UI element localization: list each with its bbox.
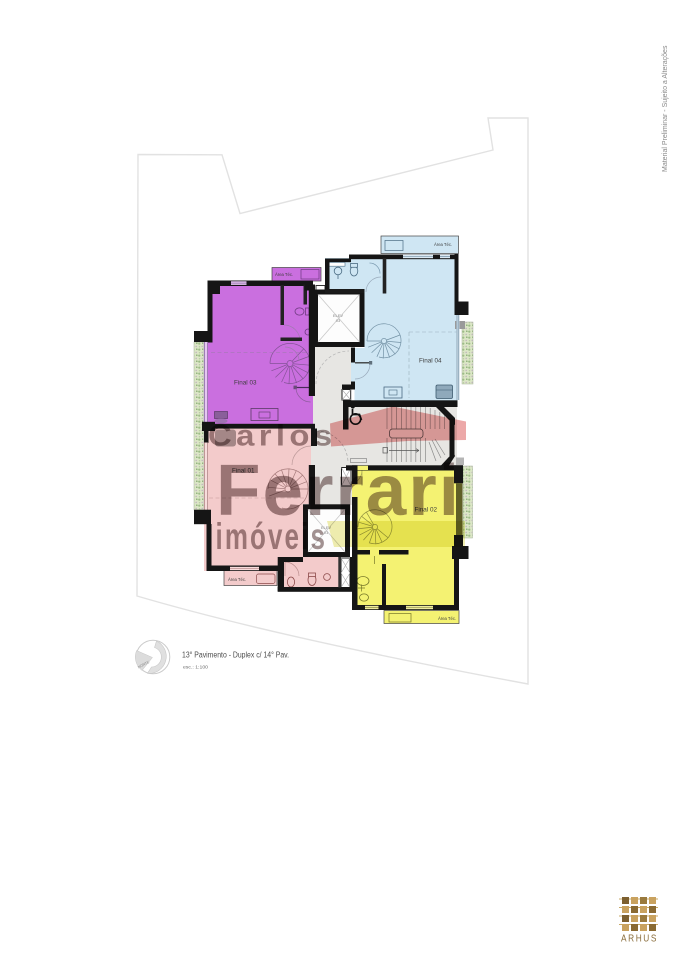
- svg-text:13° Pavimento - Duplex c/ 14°: 13° Pavimento - Duplex c/ 14° Pav.: [182, 651, 289, 660]
- svg-text:imóveis: imóveis: [216, 516, 328, 557]
- svg-text:Material Preliminar - Sujeito: Material Preliminar - Sujeito a Alteraçõ…: [662, 45, 669, 172]
- svg-text:esc.: 1:100: esc.: 1:100: [183, 665, 208, 671]
- svg-text:Área Téc.: Área Téc.: [275, 272, 293, 277]
- svg-text:Área Téc.: Área Téc.: [438, 616, 456, 621]
- svg-text:Final 04: Final 04: [419, 358, 442, 365]
- svg-text:03: 03: [336, 318, 341, 323]
- svg-text:Área Téc.: Área Téc.: [434, 242, 452, 247]
- svg-text:ARHUS: ARHUS: [621, 933, 658, 945]
- svg-text:Final 03: Final 03: [234, 380, 257, 387]
- svg-text:Área Téc.: Área Téc.: [228, 577, 246, 582]
- svg-text:Carlos: Carlos: [208, 420, 337, 453]
